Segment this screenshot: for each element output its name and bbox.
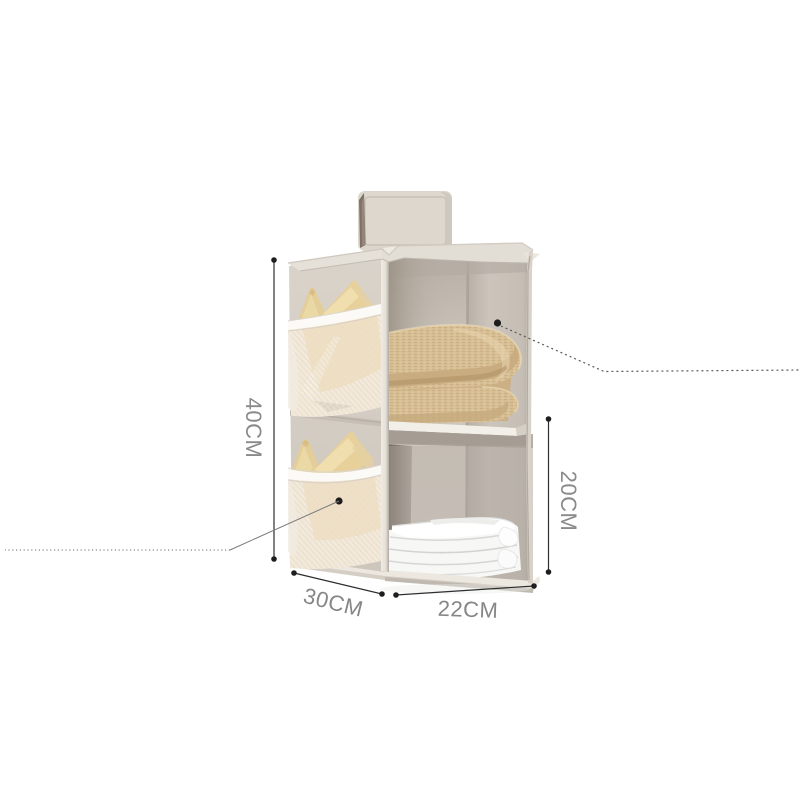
svg-text:20CM: 20CM [556, 471, 581, 532]
svg-text:40CM: 40CM [241, 398, 266, 459]
svg-text:22CM: 22CM [437, 596, 499, 623]
